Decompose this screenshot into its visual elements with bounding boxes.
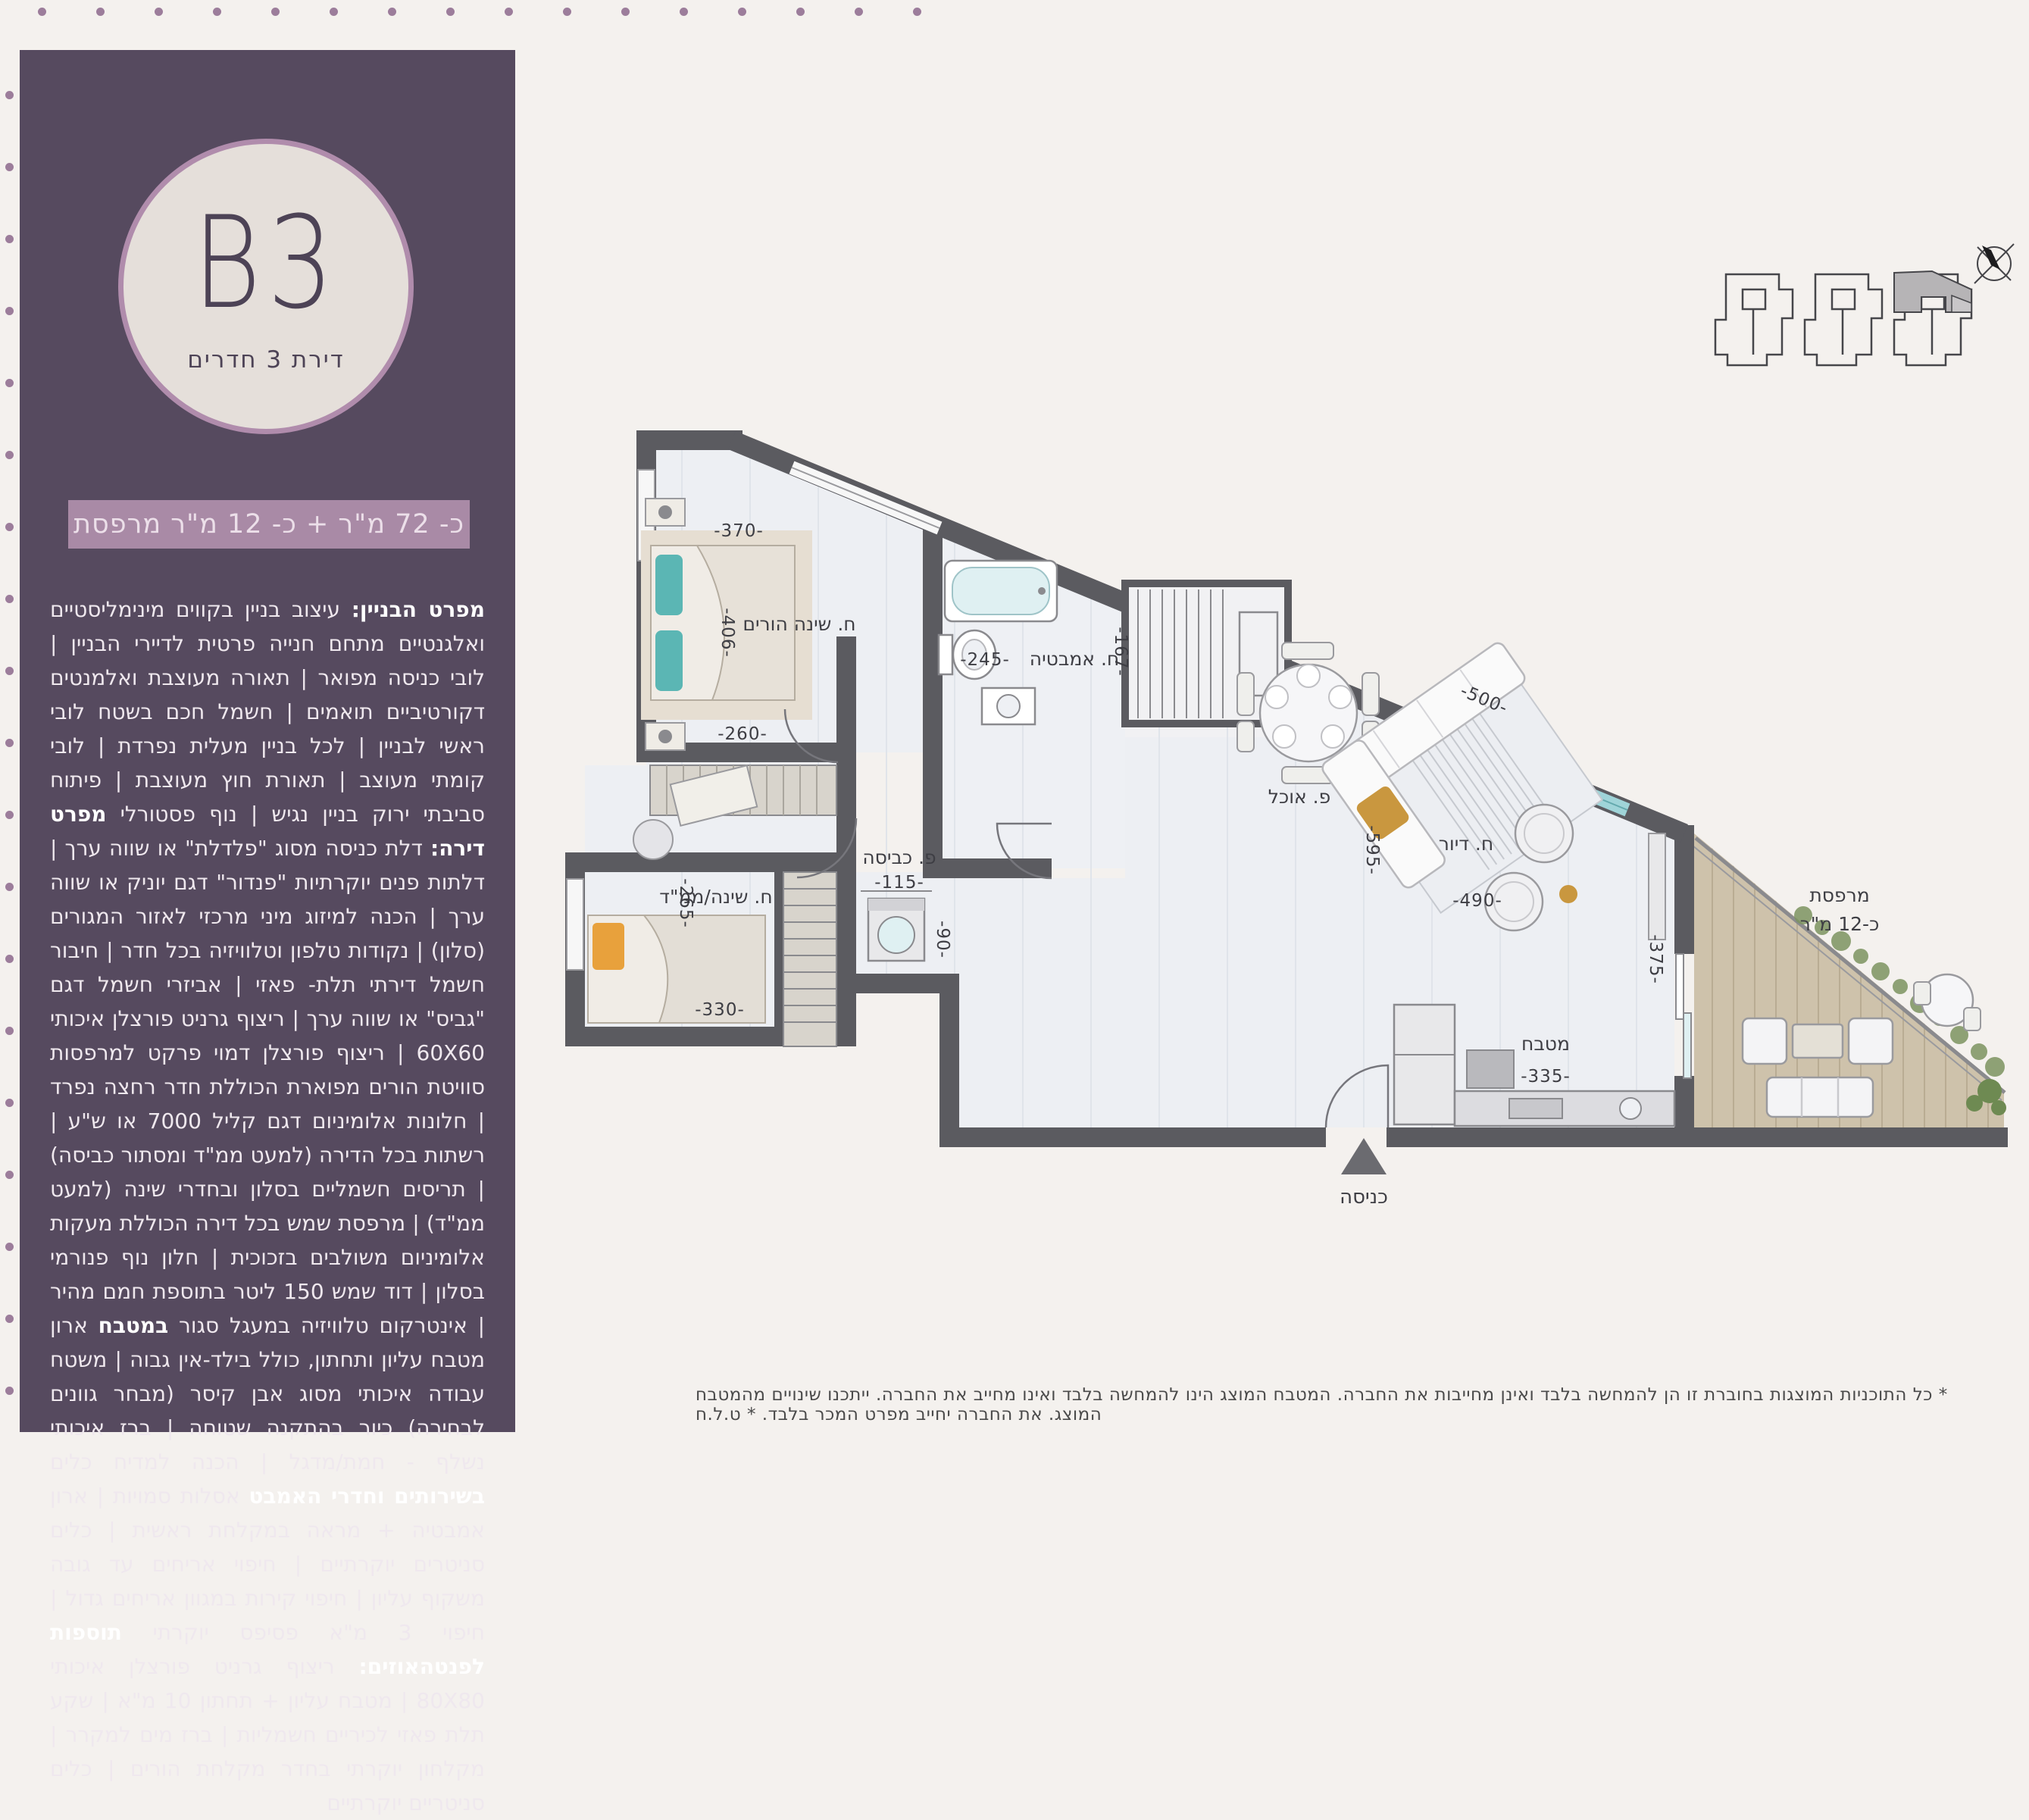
dot — [388, 8, 396, 16]
dim-490: -490- — [1452, 891, 1502, 911]
dot — [855, 8, 863, 16]
specs-text: עיצוב בניין בקווים מינימליסטיים ואלגנטיי… — [50, 597, 485, 827]
dim-265: -265- — [676, 878, 696, 928]
label-master-bedroom: ח. שינה הורים — [743, 613, 855, 635]
brochure-page: { "colors": { "page_bg": "#f4f1ee", "sid… — [0, 0, 2029, 1432]
dim-335: -335- — [1521, 1067, 1571, 1087]
label-kitchen: מטבח — [1521, 1033, 1570, 1055]
dim-595: -595- — [1362, 825, 1382, 875]
dot — [913, 8, 921, 16]
dot — [5, 1243, 14, 1251]
dot — [5, 307, 14, 315]
dot — [446, 8, 455, 16]
label-living: ח. דיור — [1439, 833, 1493, 855]
dot — [5, 883, 14, 891]
site-key-plan — [1705, 242, 2023, 394]
footer-disclaimer: * כל התוכניות המוצגות בחוברת זו הן להמחש… — [696, 1385, 1999, 1424]
dot — [38, 8, 46, 16]
label-entrance: כניסה — [1340, 1186, 1388, 1209]
dot — [505, 8, 513, 16]
area-banner: כ- 72 מ"ר + כ- 12 מ"ר מרפסת — [68, 500, 470, 549]
dot — [5, 1387, 14, 1395]
sidebar-panel: B3 דירת 3 חדרים כ- 72 מ"ר + כ- 12 מ"ר מר… — [20, 50, 515, 1432]
dim-375: -375- — [1646, 934, 1665, 984]
dot — [680, 8, 688, 16]
specs-heading: במטבח — [98, 1313, 169, 1338]
dim-115: -115- — [874, 873, 924, 893]
dot — [738, 8, 746, 16]
dot — [5, 379, 14, 387]
dot — [5, 1315, 14, 1323]
label-bathroom: ח. אמבטיה — [1030, 648, 1120, 670]
outdoor-table — [1914, 974, 1981, 1030]
bathroom-sink — [982, 688, 1035, 724]
dim-90: -90- — [933, 921, 952, 958]
dot — [563, 8, 571, 16]
dot — [5, 1099, 14, 1107]
tv-console — [1649, 833, 1665, 940]
dot — [5, 1027, 14, 1035]
dot — [5, 235, 14, 243]
dot — [5, 739, 14, 747]
unit-badge: B3 דירת 3 חדרים — [118, 139, 414, 434]
dot — [5, 91, 14, 99]
building-specs-text: מפרט הבניין: עיצוב בניין בקווים מינימליס… — [50, 593, 485, 1820]
dot — [5, 667, 14, 675]
dot — [621, 8, 630, 16]
compass-icon — [1974, 244, 2014, 283]
specs-text: דלת כניסה מסוג "פלדלת" או שווה ערך | דלת… — [50, 836, 485, 1338]
dot — [5, 451, 14, 459]
balcony-deck — [1693, 818, 2006, 1137]
label-balcony-area: כ-12 מ"ר — [1800, 913, 1880, 935]
dim-260: -260- — [717, 724, 768, 744]
dot — [330, 8, 338, 16]
dot — [213, 8, 221, 16]
label-dining: פ. אוכל — [1268, 786, 1330, 808]
dim-330: -330- — [695, 1000, 745, 1020]
floor-plan: ח. שינה הורים -370- -406- -260- ח. אמבטי… — [561, 409, 2015, 1227]
label-laundry: פ. כביסה — [862, 846, 936, 868]
unit-location-highlight — [1894, 271, 1971, 312]
dim-406: -406- — [717, 608, 737, 658]
internal-stairs — [783, 872, 836, 1046]
specs-heading: בשירותים וחדרי האמבט — [249, 1484, 485, 1509]
dot — [5, 595, 14, 603]
label-balcony: מרפסת — [1809, 884, 1869, 906]
dim-245: -245- — [960, 650, 1010, 670]
dot — [96, 8, 105, 16]
dot — [271, 8, 280, 16]
dot — [796, 8, 805, 16]
dot — [5, 523, 14, 531]
dot — [5, 955, 14, 963]
unit-subtitle: דירת 3 חדרים — [187, 346, 344, 374]
bathtub — [945, 561, 1057, 621]
dim-167: -167- — [1111, 627, 1130, 677]
balcony-sliding-door — [1676, 954, 1691, 1078]
dot — [5, 811, 14, 819]
entrance-arrow — [1341, 1138, 1387, 1174]
dot — [155, 8, 163, 16]
specs-heading: מפרט הבניין: — [352, 597, 485, 622]
dim-370: -370- — [714, 521, 764, 541]
dot — [5, 163, 14, 171]
dot — [5, 1171, 14, 1179]
unit-code: B3 — [192, 199, 339, 327]
washing-machine — [861, 891, 932, 961]
